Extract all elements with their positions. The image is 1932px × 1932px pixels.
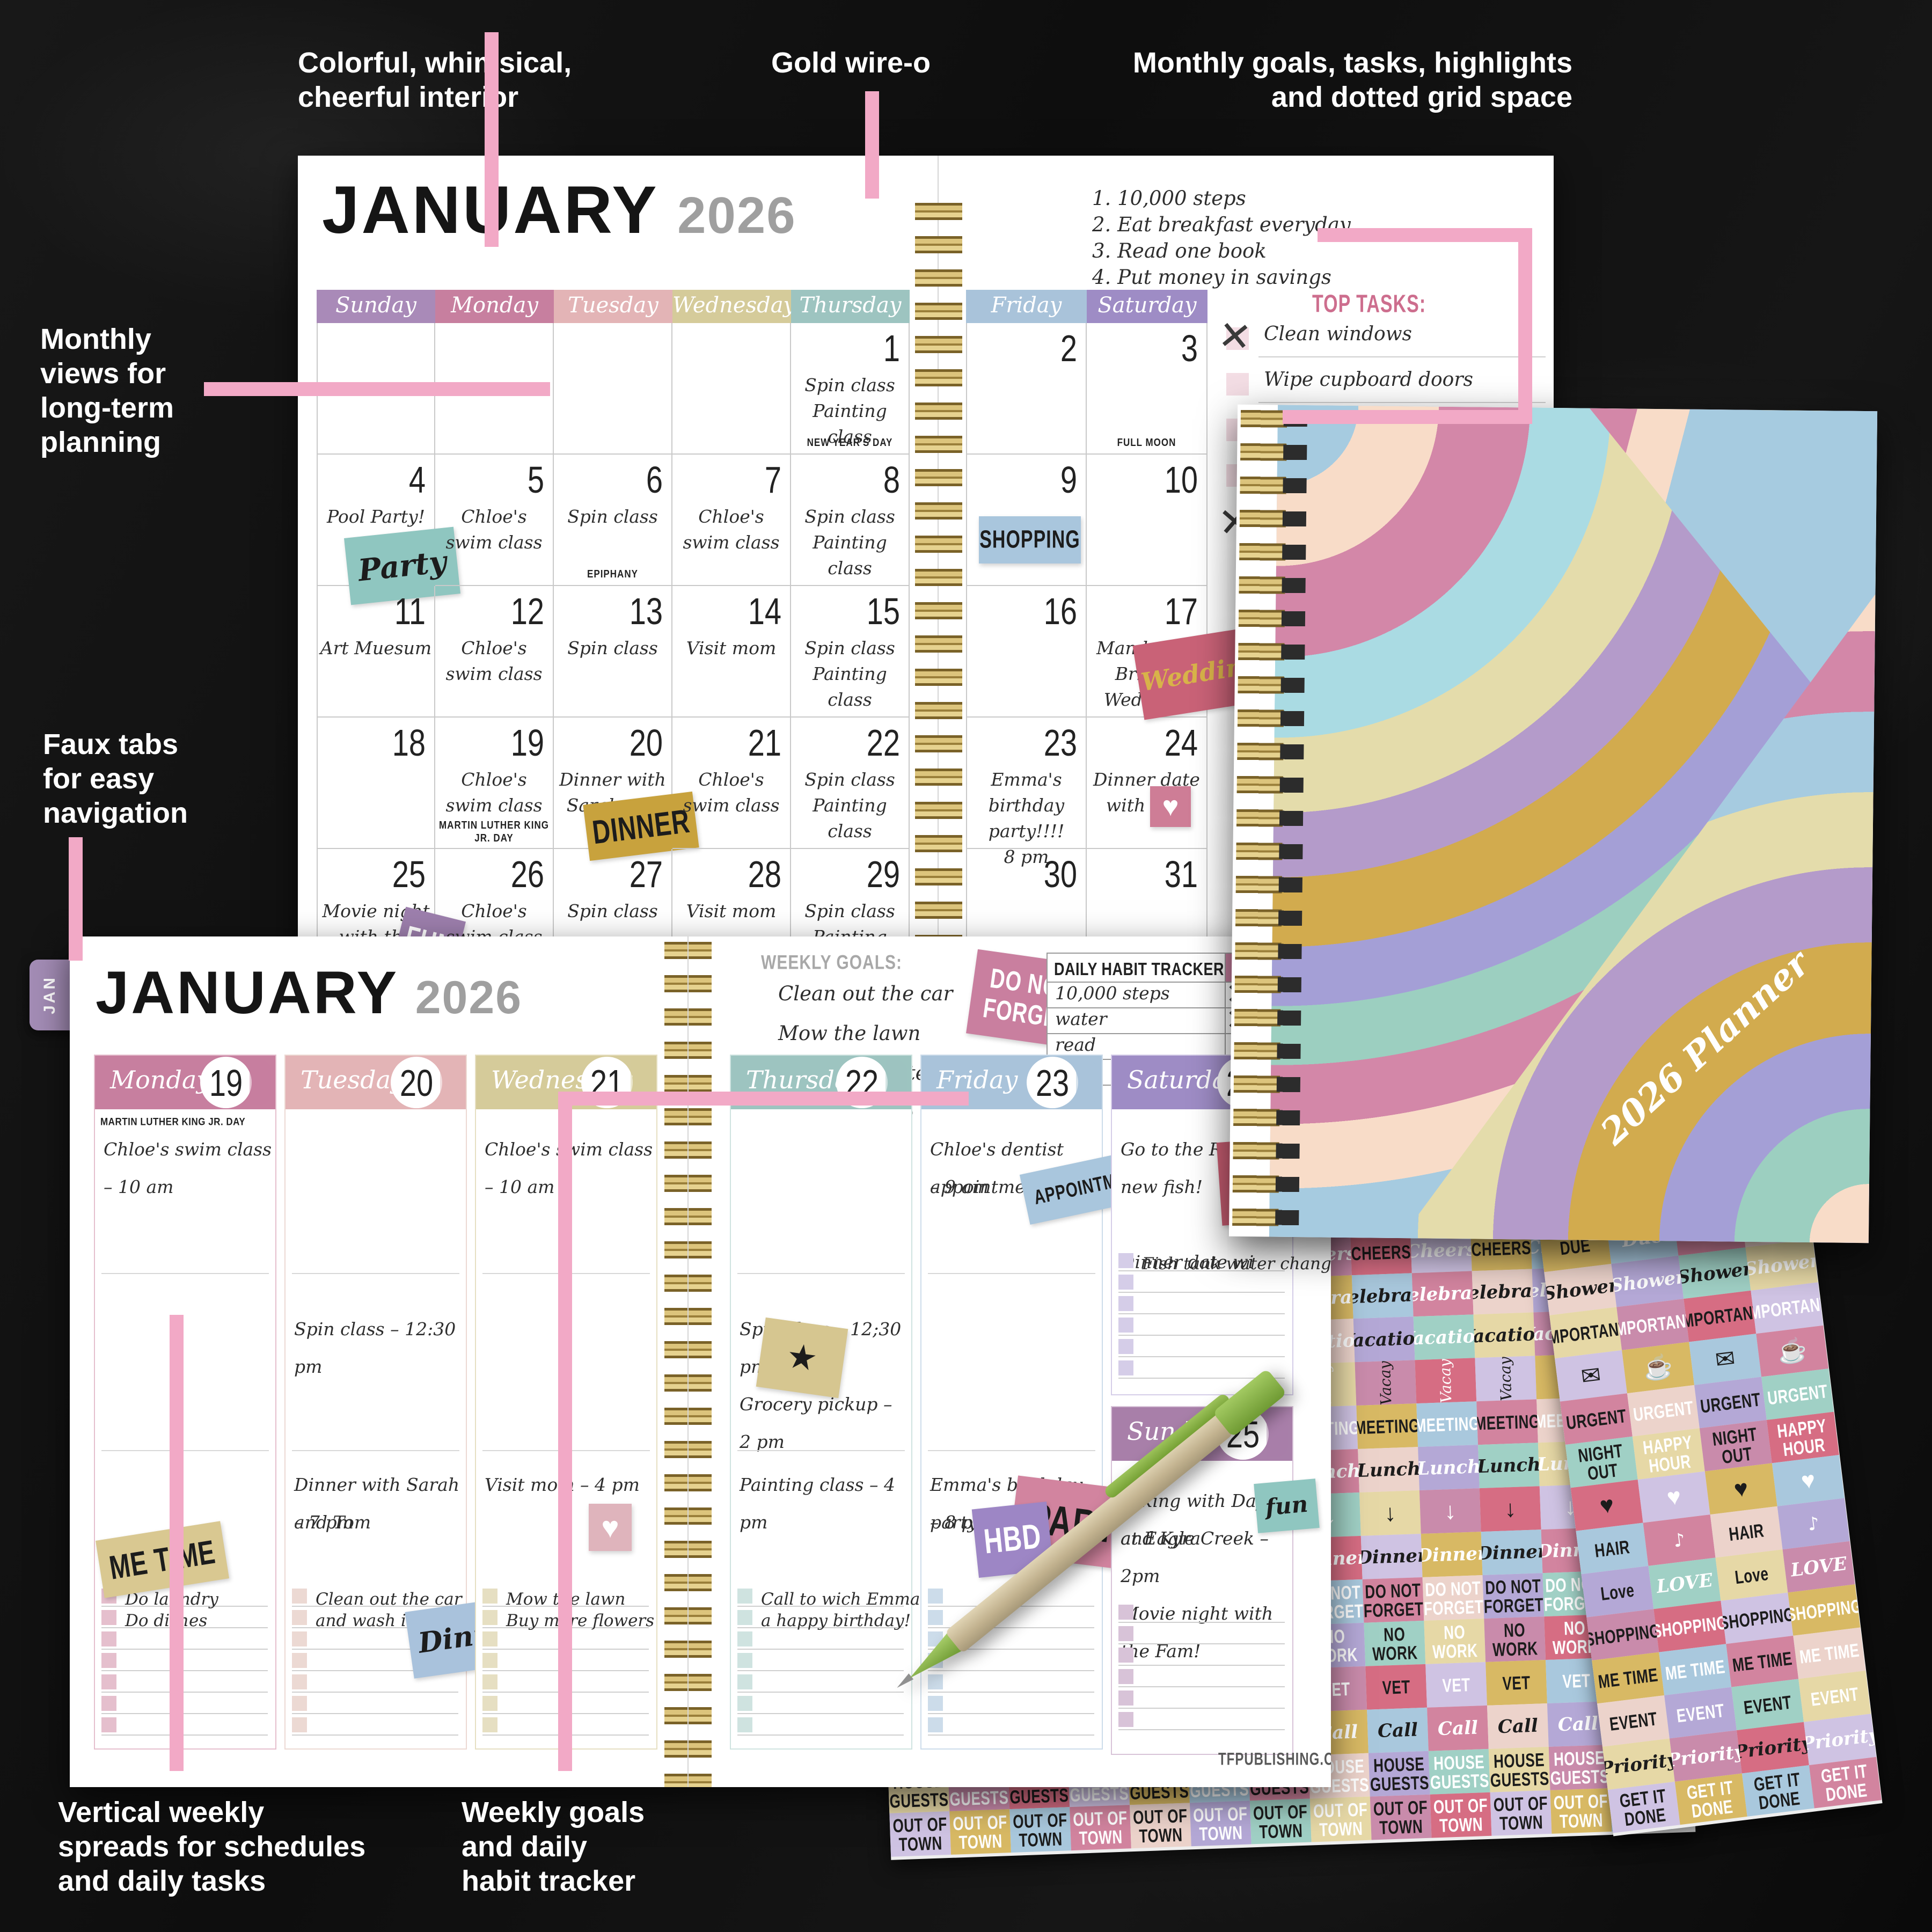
sticker-a-label: ↓ — [1504, 1497, 1517, 1521]
calendar-entry-line: Chloe's — [675, 767, 788, 793]
sticker-a-label: OUT OF TOWN — [1313, 1799, 1368, 1839]
day-checklist-box — [737, 1717, 752, 1732]
sticker-b-cell: ME TIME — [1793, 1628, 1865, 1679]
calendar-entry: Chloe'sswim class — [437, 504, 551, 555]
sticker-b-label: EVENT — [1810, 1684, 1860, 1709]
sticker-b-label: GET IT DONE — [1820, 1761, 1871, 1804]
date-number: 20 — [630, 721, 663, 764]
sticker-b-cell: GET IT DONE — [1809, 1757, 1882, 1809]
monthly-right-cell: 3FULL MOON — [1087, 323, 1207, 455]
sticker-a-label: Lunch — [1358, 1459, 1419, 1480]
day-section-divider — [928, 1273, 1095, 1274]
date-number: 10 — [1165, 458, 1198, 501]
sticker-a-label: HOUSE GUESTS — [1549, 1747, 1609, 1787]
calendar-entry-line: Chloe's — [437, 635, 551, 661]
day-sticker-label: fun — [1264, 1492, 1309, 1520]
day-checklist-box — [101, 1717, 116, 1732]
callout-line-faux-tabs — [69, 837, 83, 961]
sticker-b-label: ✉ — [1714, 1346, 1737, 1372]
sticker-b-label: ME TIME — [1597, 1665, 1659, 1690]
sticker-a-label: OUT OF TOWN — [1073, 1808, 1129, 1848]
sticker-b-cell: Shower — [1678, 1247, 1751, 1299]
date-number: 2 — [1060, 326, 1077, 370]
day-column-header: Tuesday20 — [286, 1056, 466, 1109]
sticker-b-cell: IMPORTANT — [1684, 1291, 1756, 1342]
date-number: 23 — [1044, 721, 1077, 764]
weekday-header-label: Thursday — [791, 293, 910, 318]
sticker-a-cell: Vacation — [1353, 1316, 1415, 1362]
sticker-a-label: ↓ — [1444, 1499, 1457, 1523]
sticker-a-label: Vacation — [1474, 1324, 1535, 1346]
sticker-a-cell: OUT OF TOWN — [1130, 1803, 1191, 1848]
sticker-a-label: Call — [1557, 1714, 1598, 1734]
sticker-b-cell: Priority — [1804, 1714, 1876, 1765]
date-number: 5 — [528, 458, 544, 501]
day-checklist-row — [1118, 1335, 1285, 1357]
calendar-entry: Spin class — [556, 898, 669, 924]
sticker-a-cell: VET — [1365, 1664, 1427, 1710]
calendar-entry-line: Painting class — [793, 661, 906, 713]
day-column-name: Friday — [936, 1065, 1018, 1094]
date-number: 31 — [1165, 852, 1198, 896]
sticker-b-label: LOVE — [1790, 1554, 1848, 1579]
monthly-title: JANUARY 2026 — [322, 172, 796, 248]
sticker-b-cell: ✉ — [1555, 1350, 1627, 1402]
weekly-title-year: 2026 — [415, 972, 522, 1023]
sticker-b-cell: GET IT DONE — [1742, 1765, 1814, 1817]
day-checklist-box — [292, 1653, 307, 1668]
sticker-a-cell: DO NOT FORGET — [1363, 1577, 1424, 1623]
holiday-label: MARTIN LUTHER KING JR. DAY — [435, 819, 553, 845]
sticker-a-label: Dinner — [1481, 1542, 1543, 1563]
calendar-entry-line: Spin class — [793, 504, 906, 530]
sticker-b-label: Shower — [1678, 1260, 1751, 1287]
day-section-divider — [101, 1450, 269, 1451]
sticker-b-cell: HAPPY HOUR — [1767, 1412, 1839, 1463]
day-checklist-box — [737, 1674, 752, 1689]
planner-cover: 2026 Planner — [1229, 405, 1877, 1243]
sticker-b-label: ME TIME — [1731, 1649, 1793, 1674]
monthly-goal-item: 1. 10,000 steps — [1092, 185, 1351, 211]
monthly-left-cell: 1Spin classPainting classNEW YEAR'S DAY — [791, 323, 910, 455]
sticker-a-cell: Vacay — [1355, 1360, 1416, 1406]
date-number: 29 — [867, 852, 900, 896]
calendar-entry-line: swim class — [437, 661, 551, 687]
sticker-a-cell: ↓ — [1419, 1488, 1481, 1534]
sticker-a-cell: OUT OF TOWN — [1370, 1795, 1432, 1840]
day-checklist-box — [292, 1589, 307, 1604]
day-event: Painting class – 4 pm — [740, 1466, 908, 1541]
day-number-circle: 20 — [391, 1057, 442, 1108]
sticker-b-label: Priority — [1737, 1734, 1809, 1761]
sticker-b-label: Priority — [1602, 1751, 1675, 1778]
sticker-b-label: URGENT — [1766, 1381, 1828, 1408]
sticker-b-cell: HAIR — [1710, 1506, 1783, 1558]
day-checklist-row: a happy birthday! — [737, 1606, 904, 1628]
calendar-entry: Spin class — [556, 504, 669, 530]
date-number: 19 — [511, 721, 544, 764]
sticker-b-label: ♥ — [1666, 1484, 1682, 1510]
sticker-a-cell: DO NOT FORGET — [1482, 1573, 1544, 1619]
annotation-interior: Colorful, whimsical, cheerful interior — [298, 46, 572, 114]
weekday-header-thursday: Thursday — [791, 290, 910, 323]
sticker-b-cell: SHOPPING — [1653, 1601, 1726, 1652]
sticker-b-label: GET IT DONE — [1619, 1786, 1670, 1829]
sticker-a-cell: NO WORK — [1424, 1619, 1485, 1664]
sticker-b-cell: ♥ — [1571, 1480, 1643, 1531]
callout-line-wireo — [865, 91, 879, 199]
sticker-a-label: OUT OF TOWN — [953, 1812, 1008, 1852]
monthly-right-cell: 16 — [966, 586, 1087, 718]
day-checklist-box — [1118, 1648, 1133, 1663]
sticker-b-label: IMPORTANT — [1616, 1310, 1689, 1339]
day-sticker: ★ — [756, 1318, 848, 1398]
sticker-a-label: DO NOT FORGET — [1483, 1576, 1544, 1616]
sticker-a-cell: Dinner — [1481, 1529, 1543, 1575]
sticker-a-cell: DO NOT FORGET — [1423, 1575, 1484, 1621]
day-checklist-box — [292, 1696, 307, 1711]
sticker-b-cell: SHOPPING — [1788, 1584, 1860, 1636]
top-task-label: Wipe cupboard doors — [1264, 369, 1473, 391]
day-sticker: ♥ — [589, 1504, 632, 1551]
sticker-a-cell: VET — [1425, 1662, 1487, 1708]
sticker-a-cell: HOUSE GUESTS — [1549, 1745, 1611, 1790]
sticker-a-cell: Vacay — [1475, 1356, 1536, 1401]
calendar-entry-line: Visit mom — [675, 635, 788, 661]
sticker-a-cell: HOUSE GUESTS — [1429, 1749, 1490, 1795]
day-checklist-box — [101, 1674, 116, 1689]
day-checklist-box — [928, 1717, 943, 1732]
habit-tracker-row-label: 10,000 steps — [1055, 983, 1170, 1004]
calendar-entry: Chloe'sswim class — [675, 504, 788, 555]
sticker-a-label: MEETING — [1416, 1414, 1478, 1435]
day-checklist-row — [101, 1670, 268, 1693]
event-sticker-label: SHOPPING — [979, 526, 1080, 554]
calendar-entry-line: Spin class — [793, 898, 906, 924]
sticker-a-cell: Call — [1427, 1706, 1489, 1751]
pen-tip — [895, 1673, 913, 1690]
day-column-header: Monday19 — [95, 1056, 275, 1109]
sticker-b-cell: ✉ — [1689, 1334, 1761, 1385]
annotation-monthly-views: Monthly views for long-term planning — [40, 322, 174, 459]
sticker-a-cell: Celebrate — [1352, 1273, 1414, 1319]
sticker-b-cell: LOVE — [1648, 1557, 1721, 1609]
habit-tracker-row-label: read — [1055, 1034, 1096, 1055]
day-checklist-box — [101, 1610, 116, 1625]
sticker-a-label: VET — [1442, 1675, 1470, 1695]
day-checklist-row — [1118, 1643, 1285, 1666]
weekday-header-label: Saturday — [1087, 293, 1207, 318]
date-number: 3 — [1181, 326, 1198, 370]
day-checklist-box — [101, 1696, 116, 1711]
monthly-left-cell: 7Chloe'sswim class — [672, 455, 791, 586]
calendar-entry-line: Spin class — [793, 372, 906, 398]
monthly-left-cell: 12Chloe'sswim class — [435, 586, 554, 718]
sticker-b-cell: IMPORTANT — [1616, 1299, 1689, 1350]
sticker-b-label: Shower — [1544, 1276, 1616, 1303]
sticker-a-cell: OUT OF TOWN — [1250, 1799, 1312, 1845]
sticker-a-cell: MEETING — [1476, 1399, 1538, 1445]
sticker-b-cell: EVENT — [1798, 1671, 1871, 1722]
monthly-goal-item: 4. Put money in savings — [1092, 264, 1351, 290]
sticker-a-label: CHEERS — [1471, 1238, 1532, 1258]
day-checklist-row — [737, 1692, 904, 1714]
day-checklist-box — [482, 1653, 497, 1668]
sticker-a-cell: Vacation — [1414, 1314, 1475, 1360]
day-checklist-box — [737, 1589, 752, 1604]
date-number: 27 — [630, 852, 663, 896]
sticker-a-label: Celebrate — [1412, 1283, 1474, 1305]
sticker-b-cell: URGENT — [1560, 1393, 1633, 1445]
calendar-entry-line: swim class — [437, 793, 551, 818]
sticker-b-label: GET IT DONE — [1753, 1769, 1804, 1812]
sticker-a-cell: OUT OF TOWN — [1009, 1807, 1071, 1853]
annotation-faux-tabs: Faux tabs for easy navigation — [43, 727, 188, 830]
calendar-entry-line: Spin class — [556, 504, 669, 530]
day-checklist-row — [928, 1713, 1094, 1736]
monthly-goals-list: 1. 10,000 steps2. Eat breakfast everyday… — [1092, 185, 1351, 290]
sticker-a-cell: ↓ — [1480, 1486, 1541, 1532]
sticker-a-label: VET — [1382, 1677, 1410, 1697]
calendar-entry-line: Spin class — [556, 898, 669, 924]
sticker-b-cell: ☕ — [1756, 1326, 1828, 1377]
date-number: 30 — [1044, 852, 1077, 896]
day-checklist-row: Clean out the car — [292, 1584, 458, 1607]
day-checklist-box — [101, 1631, 116, 1646]
date-number: 8 — [883, 458, 900, 501]
day-checklist-row — [1118, 1665, 1285, 1687]
holiday-label: NEW YEAR'S DAY — [791, 436, 909, 449]
sticker-b-label: IMPORTANT — [1751, 1293, 1823, 1322]
sticker-b-cell: EVENT — [1597, 1695, 1670, 1747]
sticker-b-label: SHOPPING — [1653, 1613, 1726, 1641]
monthly-left-cell: 8Spin classPainting class — [791, 455, 910, 586]
day-checklist-box — [1118, 1669, 1133, 1684]
sticker-b-cell: URGENT — [1761, 1368, 1834, 1420]
day-checklist-row — [101, 1627, 268, 1650]
calendar-entry: Pool Party! — [320, 504, 432, 530]
date-number: 6 — [646, 458, 663, 501]
sticker-b-label: HAIR — [1593, 1537, 1630, 1560]
sticker-a-cell: HOUSE GUESTS — [1368, 1751, 1430, 1797]
calendar-entry-line: birthday — [969, 793, 1084, 818]
sticker-a-label: Vacay — [1497, 1356, 1514, 1401]
day-number-circle: 19 — [200, 1057, 252, 1108]
calendar-entry-line: Visit mom — [675, 898, 788, 924]
day-header-notch — [250, 1060, 271, 1105]
sticker-a-label: OUT OF TOWN — [1433, 1795, 1489, 1835]
day-sticker: fun — [1254, 1479, 1320, 1533]
holiday-label: FULL MOON — [1087, 436, 1206, 449]
day-checklist-row — [737, 1670, 904, 1693]
day-checklist-box — [482, 1610, 497, 1625]
sticker-a-cell: Call — [1487, 1703, 1549, 1749]
day-checklist-box — [737, 1653, 752, 1668]
weekly-page-seam — [687, 936, 689, 1787]
sticker-a-label: HOUSE GUESTS — [1429, 1752, 1489, 1791]
sticker-a-label: OUT OF TOWN — [1193, 1804, 1249, 1843]
day-checklist-box — [1118, 1690, 1133, 1706]
event-sticker-label: ♥ — [1162, 791, 1179, 823]
day-checklist-row — [928, 1692, 1094, 1714]
callout-line-goals-h2 — [1283, 410, 1532, 424]
sticker-a-label: OUT OF TOWN — [892, 1814, 948, 1854]
sticker-b-cell: NIGHT OUT — [1700, 1420, 1772, 1472]
day-checklist-row — [101, 1692, 268, 1714]
day-checklist-box — [1118, 1296, 1133, 1311]
day-checklist-box — [1118, 1712, 1133, 1727]
day-number: 20 — [400, 1060, 433, 1104]
date-number: 17 — [1165, 589, 1198, 633]
day-number-circle: 23 — [1027, 1057, 1078, 1108]
calendar-entry-line: Chloe's — [437, 767, 551, 793]
sticker-a-label: Vacay — [1377, 1360, 1394, 1405]
sticker-a-cell: Lunch — [1358, 1447, 1419, 1492]
day-header-notch — [440, 1060, 462, 1105]
day-event: Grocery pickup – 2 pm — [740, 1386, 908, 1461]
monthly-right-cell: 24Dinner datewith Dan♥ — [1087, 718, 1207, 849]
calendar-entry-line: Pool Party! — [320, 504, 432, 530]
weekday-header-monday: Monday — [435, 290, 554, 323]
sticker-b-cell: Priority — [1670, 1730, 1742, 1782]
sticker-a-label: Cheers — [1410, 1240, 1472, 1261]
sticker-b-cell: ☕ — [1622, 1342, 1694, 1393]
annotation-wireo: Gold wire-o — [771, 46, 931, 80]
day-checklist-row — [1118, 1622, 1285, 1644]
calendar-entry: Art Muesum — [320, 635, 432, 661]
sticker-b-cell: GET IT DONE — [1608, 1782, 1680, 1833]
sticker-b-cell: SHOPPING — [1586, 1609, 1659, 1660]
weekly-title-month: JANUARY — [96, 959, 399, 1026]
sticker-a-cell: OUT OF TOWN — [1190, 1801, 1252, 1846]
date-number: 15 — [867, 589, 900, 633]
sticker-b-label: ME TIME — [1664, 1657, 1726, 1682]
day-event: Spin class – 12:30 pm — [294, 1311, 463, 1386]
sticker-a-label: OUT OF TOWN — [1133, 1806, 1189, 1846]
sticker-a-label: VET — [1502, 1673, 1531, 1693]
habit-tracker-row-label: water — [1055, 1008, 1107, 1029]
day-number: 23 — [1036, 1060, 1069, 1104]
sticker-b-label: LOVE — [1656, 1571, 1714, 1596]
day-section-divider — [737, 1273, 905, 1274]
sticker-b-cell: URGENT — [1694, 1377, 1767, 1429]
date-number: 1 — [883, 326, 900, 370]
sticker-b-label: Love — [1734, 1564, 1769, 1586]
sticker-b-cell: NIGHT OUT — [1565, 1437, 1638, 1488]
day-checklist-row: Do dishes — [101, 1606, 268, 1628]
sticker-a-label: ↓ — [1384, 1501, 1397, 1525]
sticker-b-label: URGENT — [1699, 1389, 1761, 1416]
sticker-b-cell: IMPORTANT — [1751, 1282, 1823, 1334]
calendar-entry-line: Painting class — [793, 793, 906, 844]
day-section-divider — [928, 1450, 1095, 1451]
date-number: 12 — [511, 589, 544, 633]
date-number: 7 — [765, 458, 781, 501]
sticker-b-cell: HAIR — [1576, 1523, 1649, 1574]
weekly-goals-title: WEEKLY GOALS: — [761, 952, 902, 975]
sticker-b-cell: Shower — [1745, 1239, 1818, 1291]
sticker-b-label: GET IT DONE — [1686, 1777, 1737, 1820]
sticker-a-cell: NO WORK — [1364, 1621, 1425, 1666]
date-number: 16 — [1044, 589, 1077, 633]
calendar-entry-line: Spin class — [556, 635, 669, 661]
calendar-entry-line: Spin class — [793, 767, 906, 793]
sticker-a-cell: Celebrate — [1472, 1269, 1534, 1314]
sticker-a-cell: Vacation — [1474, 1312, 1535, 1358]
annotation-monthly-goals: Monthly goals, tasks, highlights and dot… — [1065, 46, 1572, 114]
sticker-b-label: ME TIME — [1798, 1640, 1860, 1666]
date-number: 18 — [392, 721, 426, 764]
sticker-b-cell: EVENT — [1664, 1687, 1737, 1739]
monthly-right-cell: 9SHOPPING — [966, 455, 1087, 586]
sticker-b-label: URGENT — [1565, 1406, 1627, 1432]
date-number: 26 — [511, 852, 544, 896]
habit-tracker-title: DAILY HABIT TRACKER: — [1054, 959, 1230, 980]
weekly-title: JANUARY 2026 — [96, 958, 522, 1027]
monthly-left-cell: 13Spin class — [554, 586, 672, 718]
sticker-b-cell: EVENT — [1731, 1679, 1804, 1730]
day-checklist-box — [1118, 1626, 1133, 1641]
day-checklist-box — [101, 1653, 116, 1668]
sticker-a-label: Celebrate — [1472, 1281, 1534, 1302]
day-sticker-label: ♥ — [601, 1512, 619, 1543]
calendar-entry: Visit mom — [675, 898, 788, 924]
sticker-a-label: OUT OF TOWN — [1253, 1802, 1308, 1841]
weekday-header-label: Tuesday — [554, 293, 672, 318]
sticker-b-label: ♥ — [1800, 1468, 1817, 1493]
day-column-name: Monday — [110, 1065, 210, 1094]
day-checklist-row — [1118, 1600, 1285, 1623]
event-sticker: SHOPPING — [979, 516, 1081, 563]
sticker-a-label: MEETING — [1356, 1416, 1418, 1437]
calendar-entry-line: Chloe's — [437, 504, 551, 530]
monthly-right-cell: 2 — [966, 323, 1087, 455]
sticker-b-label: ♥ — [1733, 1476, 1750, 1502]
day-checklist-box — [292, 1717, 307, 1732]
sticker-b-label: ♪ — [1672, 1531, 1686, 1550]
sticker-a-cell: MEETING — [1356, 1403, 1418, 1449]
date-number: 28 — [748, 852, 781, 896]
sticker-a-cell: Dinner — [1421, 1532, 1483, 1577]
calendar-entry-line: swim class — [675, 530, 788, 555]
monthly-left-cell: 19Chloe'sswim classMARTIN LUTHER KING JR… — [435, 718, 554, 849]
date-number: 24 — [1165, 721, 1198, 764]
sticker-a-cell: OUT OF TOWN — [1490, 1790, 1552, 1836]
monthly-left-cell: 22Spin classPainting class — [791, 718, 910, 849]
calendar-entry: Chloe'sswim class — [437, 767, 551, 818]
sticker-a-label: MEETING — [1476, 1411, 1538, 1432]
date-number: 9 — [1060, 458, 1077, 501]
monthly-left-cell: 11Art Muesum — [317, 586, 435, 718]
sticker-a-cell: NO WORK — [1484, 1616, 1546, 1662]
sticker-b-label: ☕ — [1642, 1354, 1674, 1381]
day-checklist-row: Fish tank water change — [1118, 1249, 1285, 1271]
sticker-a-label: NO WORK — [1364, 1623, 1425, 1663]
day-checklist-box — [1118, 1605, 1133, 1620]
annotation-weekly-goals: Weekly goals and daily habit tracker — [462, 1795, 645, 1898]
callout-line-weekly-goals-v — [558, 1092, 572, 1771]
sticker-a-label: OUT OF TOWN — [1493, 1793, 1549, 1833]
day-sticker-label: ★ — [784, 1338, 819, 1378]
day-checklist-box — [928, 1589, 943, 1604]
sticker-a-cell: Call — [1367, 1708, 1429, 1753]
weekday-header-label: Friday — [966, 293, 1087, 318]
calendar-entry-line: Spin class — [793, 635, 906, 661]
monthly-left-cell: 15Spin classPainting class — [791, 586, 910, 718]
day-number: 19 — [209, 1060, 243, 1104]
monthly-right-cell: 17Mandy andBrian'sWedding!Wedding — [1087, 586, 1207, 718]
holiday-label: EPIPHANY — [554, 568, 671, 581]
